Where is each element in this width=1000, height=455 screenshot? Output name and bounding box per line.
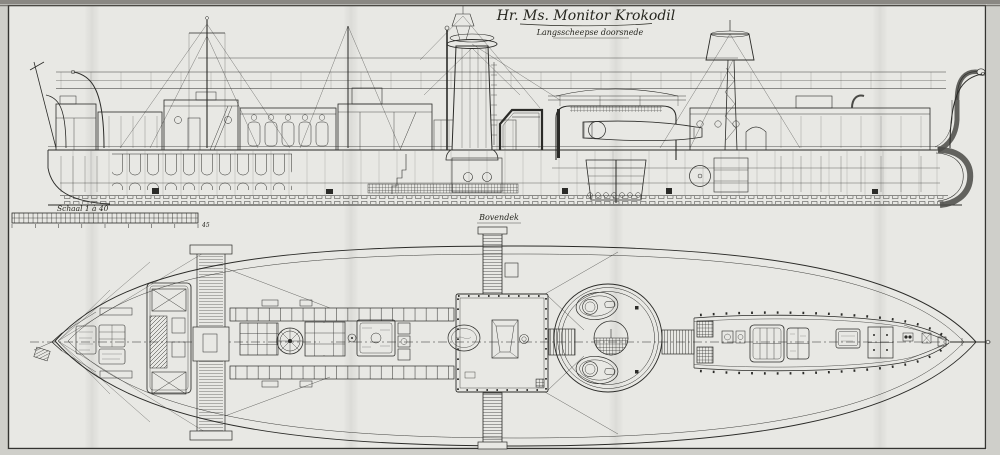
turret-roof-grating: [570, 106, 662, 112]
companion-hatch: [150, 316, 167, 368]
ship-drawing: Hr. Ms. Monitor Krokodil Langsscheepse d…: [0, 0, 1000, 455]
fold-line: [84, 5, 100, 449]
walkway-end-cap: [478, 227, 507, 234]
frame-tick-row: [62, 196, 946, 204]
bridge-walkway-top: [483, 233, 502, 294]
deck-plan-label: Bovendek: [478, 213, 519, 222]
jackstaff-ball: [986, 340, 990, 344]
cabin-row-bottom: [230, 366, 454, 379]
aft-bridge-platform: [193, 327, 229, 361]
mast-center: [351, 337, 353, 339]
drawing-subtitle: Langsscheepse doorsnede: [536, 28, 644, 37]
stern-hold-panels: [60, 156, 108, 192]
capstan: [277, 328, 303, 354]
deck-grating: [697, 347, 713, 363]
fold-line: [872, 5, 888, 449]
bridge-wing-end: [190, 431, 232, 440]
gangway-from-turret: [662, 330, 694, 354]
berth-grid-a: [240, 323, 278, 355]
sheet-top-edge: [0, 0, 1000, 4]
scale-end-value: 45: [201, 222, 210, 229]
turret-bolt: [635, 370, 639, 374]
scanned-blueprint-sheet: Hr. Ms. Monitor Krokodil Langsscheepse d…: [0, 0, 1000, 455]
walkway-end-cap: [478, 442, 507, 449]
deckhouse-aft-2: [98, 112, 162, 150]
scale-label: Schaal 1 à 40: [57, 204, 109, 213]
turret-bolt: [635, 306, 639, 310]
berth-grid-b: [305, 322, 345, 356]
deck-grating: [697, 321, 713, 337]
bridge-walkway-bottom: [483, 393, 502, 443]
cabin-window-row: [112, 154, 292, 190]
aft-hold-panels: [770, 156, 932, 192]
small-grating: [536, 379, 544, 387]
cabin-row-top: [230, 308, 454, 321]
bridge-wing-end: [190, 245, 232, 254]
fold-line: [343, 5, 359, 449]
stokehold-grating: [368, 184, 518, 193]
drawing-title: Hr. Ms. Monitor Krokodil: [496, 8, 676, 24]
awning-stanchions: [56, 72, 946, 89]
